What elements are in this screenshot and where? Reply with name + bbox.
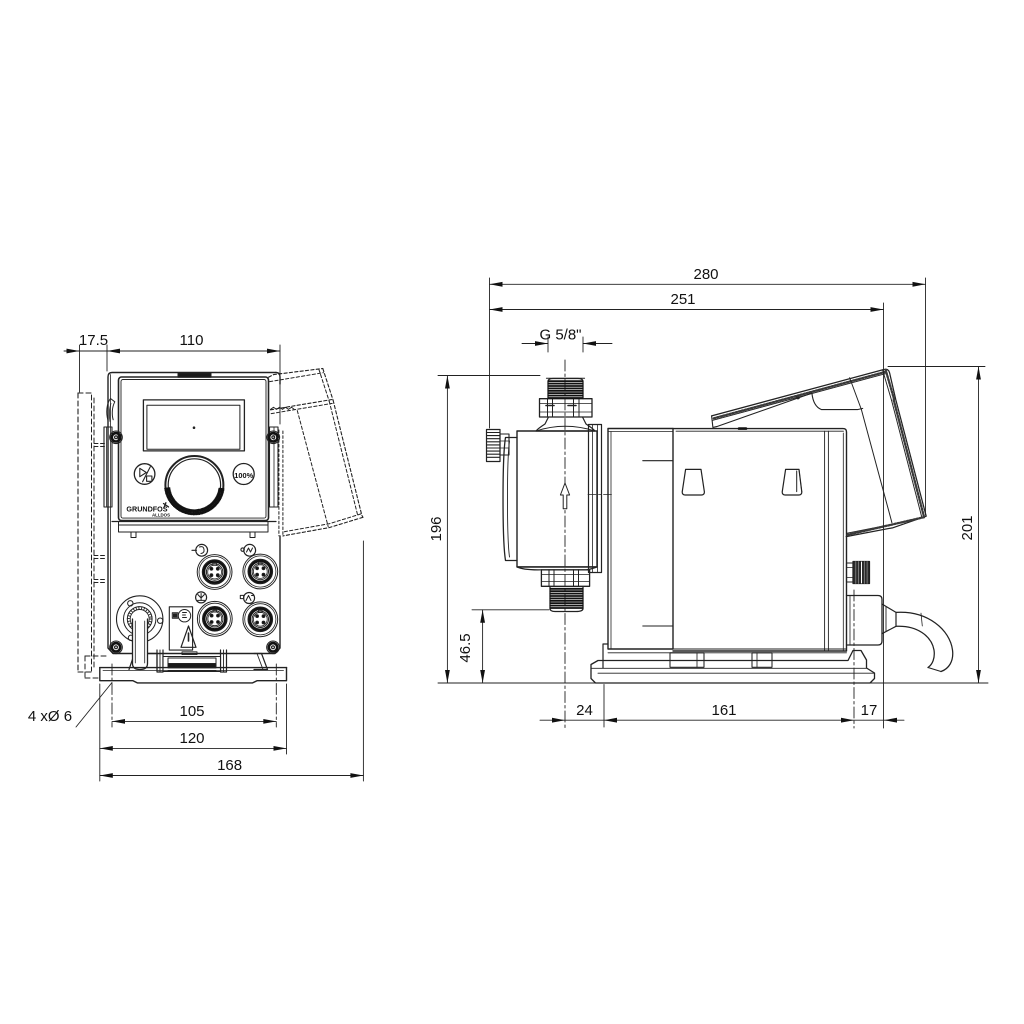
svg-text:196: 196 [428, 516, 445, 541]
svg-text:105: 105 [179, 703, 204, 720]
svg-text:4 xØ 6: 4 xØ 6 [28, 708, 72, 725]
svg-text:100%: 100% [234, 471, 253, 480]
svg-text:120: 120 [179, 730, 204, 747]
svg-text:168: 168 [217, 757, 242, 774]
svg-text:17: 17 [861, 702, 878, 719]
svg-text:46.5: 46.5 [457, 633, 474, 662]
svg-text:280: 280 [693, 266, 718, 283]
svg-text:24: 24 [576, 702, 593, 719]
svg-text:ALLDOS: ALLDOS [152, 513, 170, 518]
svg-text:17.5: 17.5 [79, 332, 108, 349]
svg-text:110: 110 [180, 332, 204, 349]
svg-text:201: 201 [959, 515, 976, 540]
svg-text:G 5/8": G 5/8" [539, 327, 581, 344]
svg-text:251: 251 [670, 291, 695, 308]
svg-text:161: 161 [711, 702, 736, 719]
